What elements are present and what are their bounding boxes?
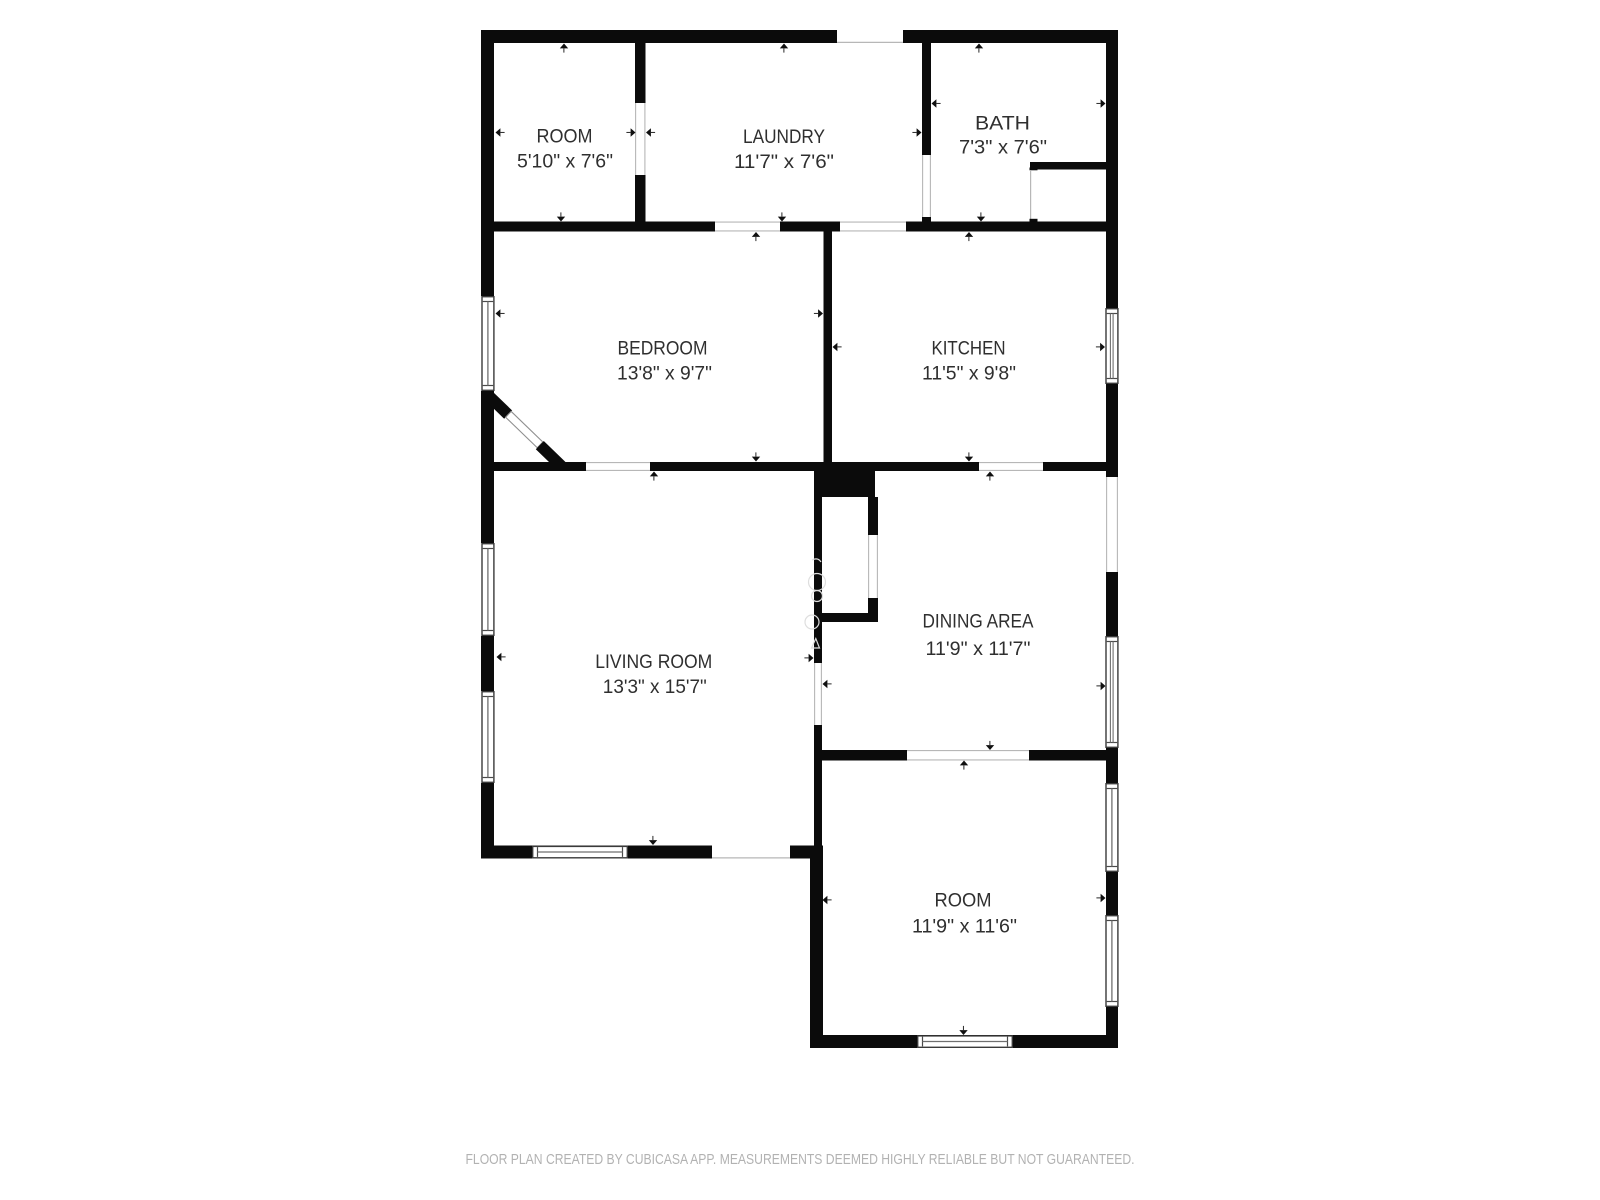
svg-text:BATH: BATH [975,113,1030,135]
svg-text:7'3" x 7'6": 7'3" x 7'6" [959,137,1047,159]
svg-text:11'7" x 7'6": 11'7" x 7'6" [734,151,834,173]
svg-text:11'9" x 11'6": 11'9" x 11'6" [912,916,1017,938]
svg-text:11'5" x 9'8": 11'5" x 9'8" [922,363,1016,385]
svg-text:11'9" x 11'7": 11'9" x 11'7" [926,638,1031,660]
svg-text:ROOM: ROOM [537,126,593,148]
svg-text:DINING AREA: DINING AREA [923,611,1034,633]
svg-text:13'8" x 9'7": 13'8" x 9'7" [617,363,712,385]
svg-text:5'10" x 7'6": 5'10" x 7'6" [517,151,613,173]
svg-text:13'3" x 15'7": 13'3" x 15'7" [603,676,707,698]
svg-text:BEDROOM: BEDROOM [618,338,708,360]
svg-text:KITCHEN: KITCHEN [932,338,1006,360]
svg-text:FLOOR PLAN CREATED BY CUBICASA: FLOOR PLAN CREATED BY CUBICASA APP. MEAS… [466,1151,1135,1168]
svg-text:LAUNDRY: LAUNDRY [743,126,825,148]
svg-text:LIVING ROOM: LIVING ROOM [595,651,712,673]
svg-text:ROOM: ROOM [935,890,992,912]
